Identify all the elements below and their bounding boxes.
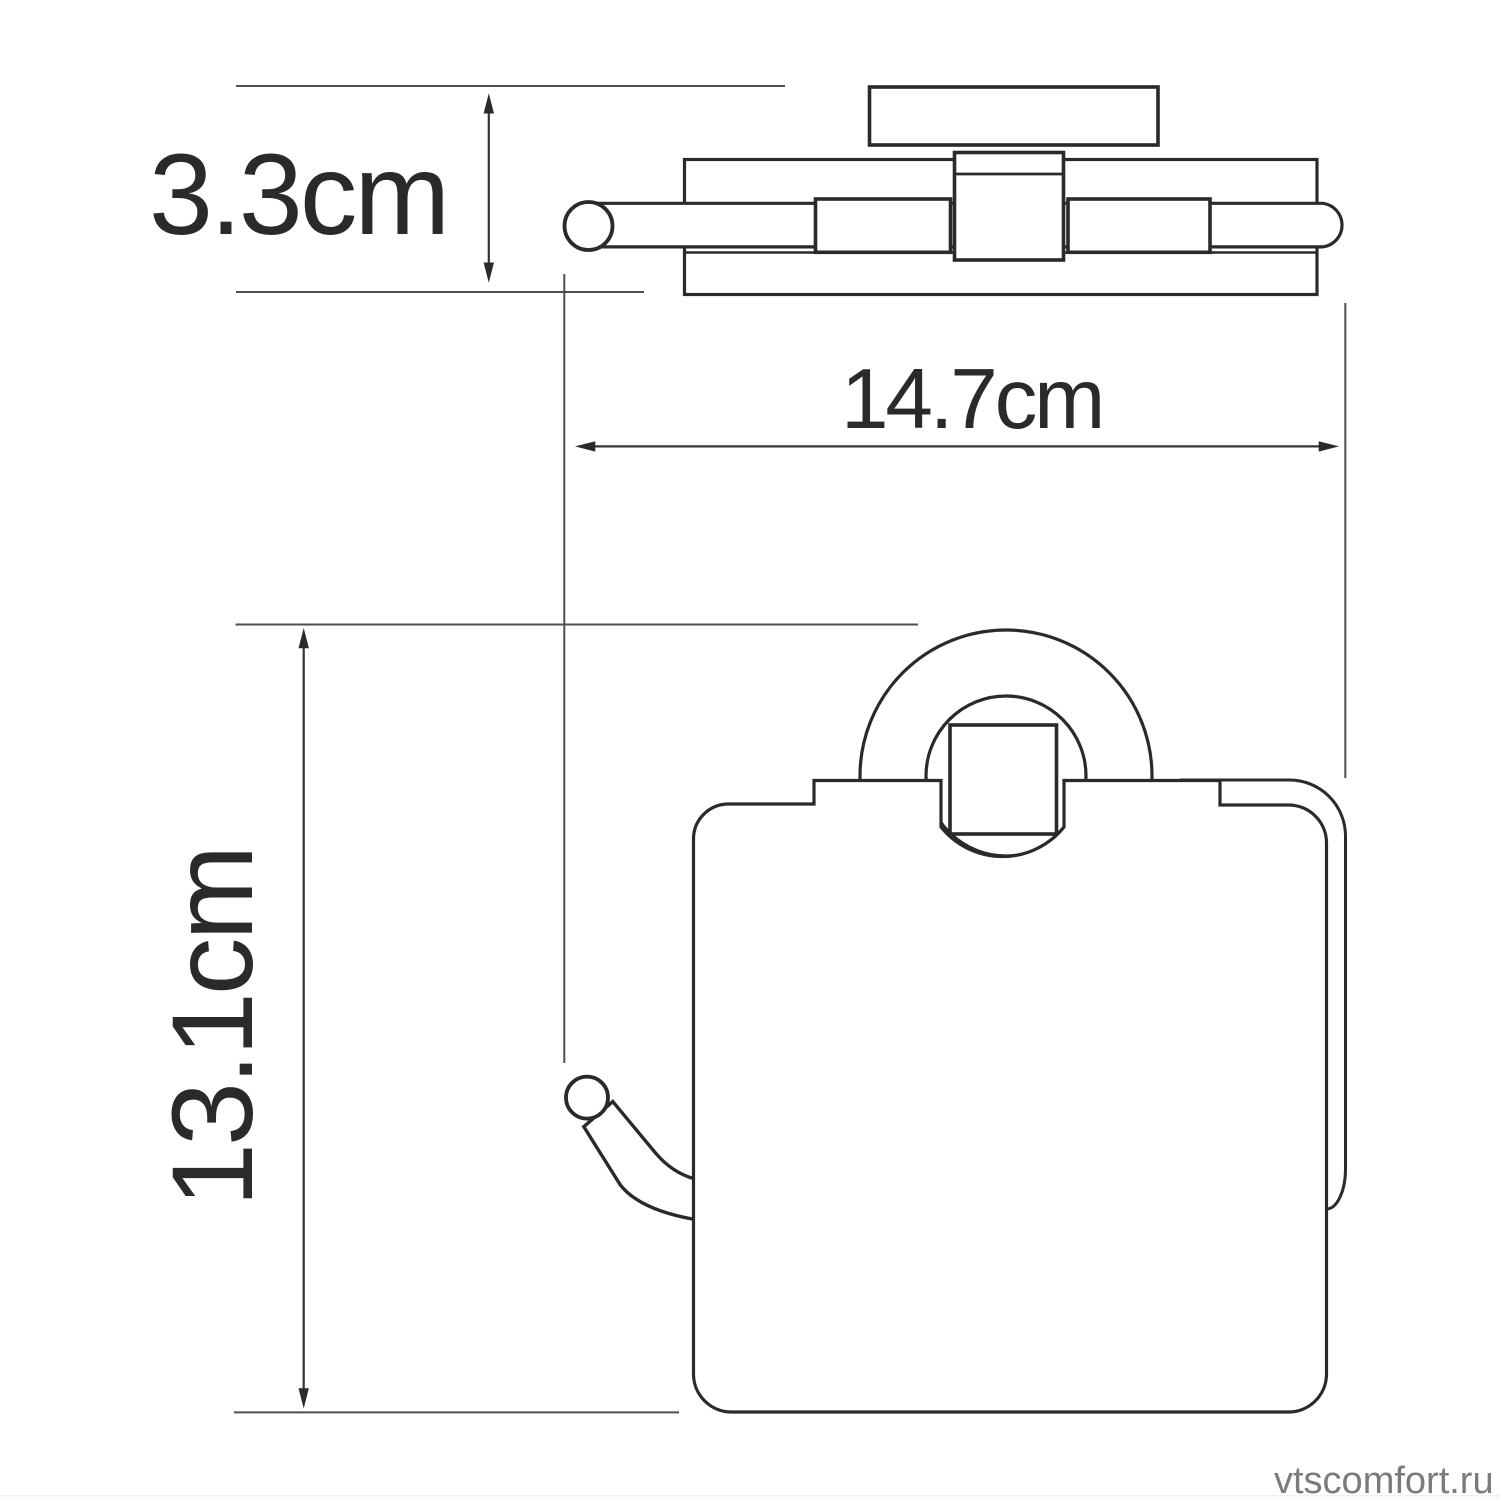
svg-text:14.7cm: 14.7cm: [841, 352, 1102, 447]
svg-text:13.1cm: 13.1cm: [149, 848, 277, 1207]
svg-text:vtscomfort.ru: vtscomfort.ru: [1274, 1460, 1494, 1500]
svg-text:3.3cm: 3.3cm: [149, 131, 447, 259]
